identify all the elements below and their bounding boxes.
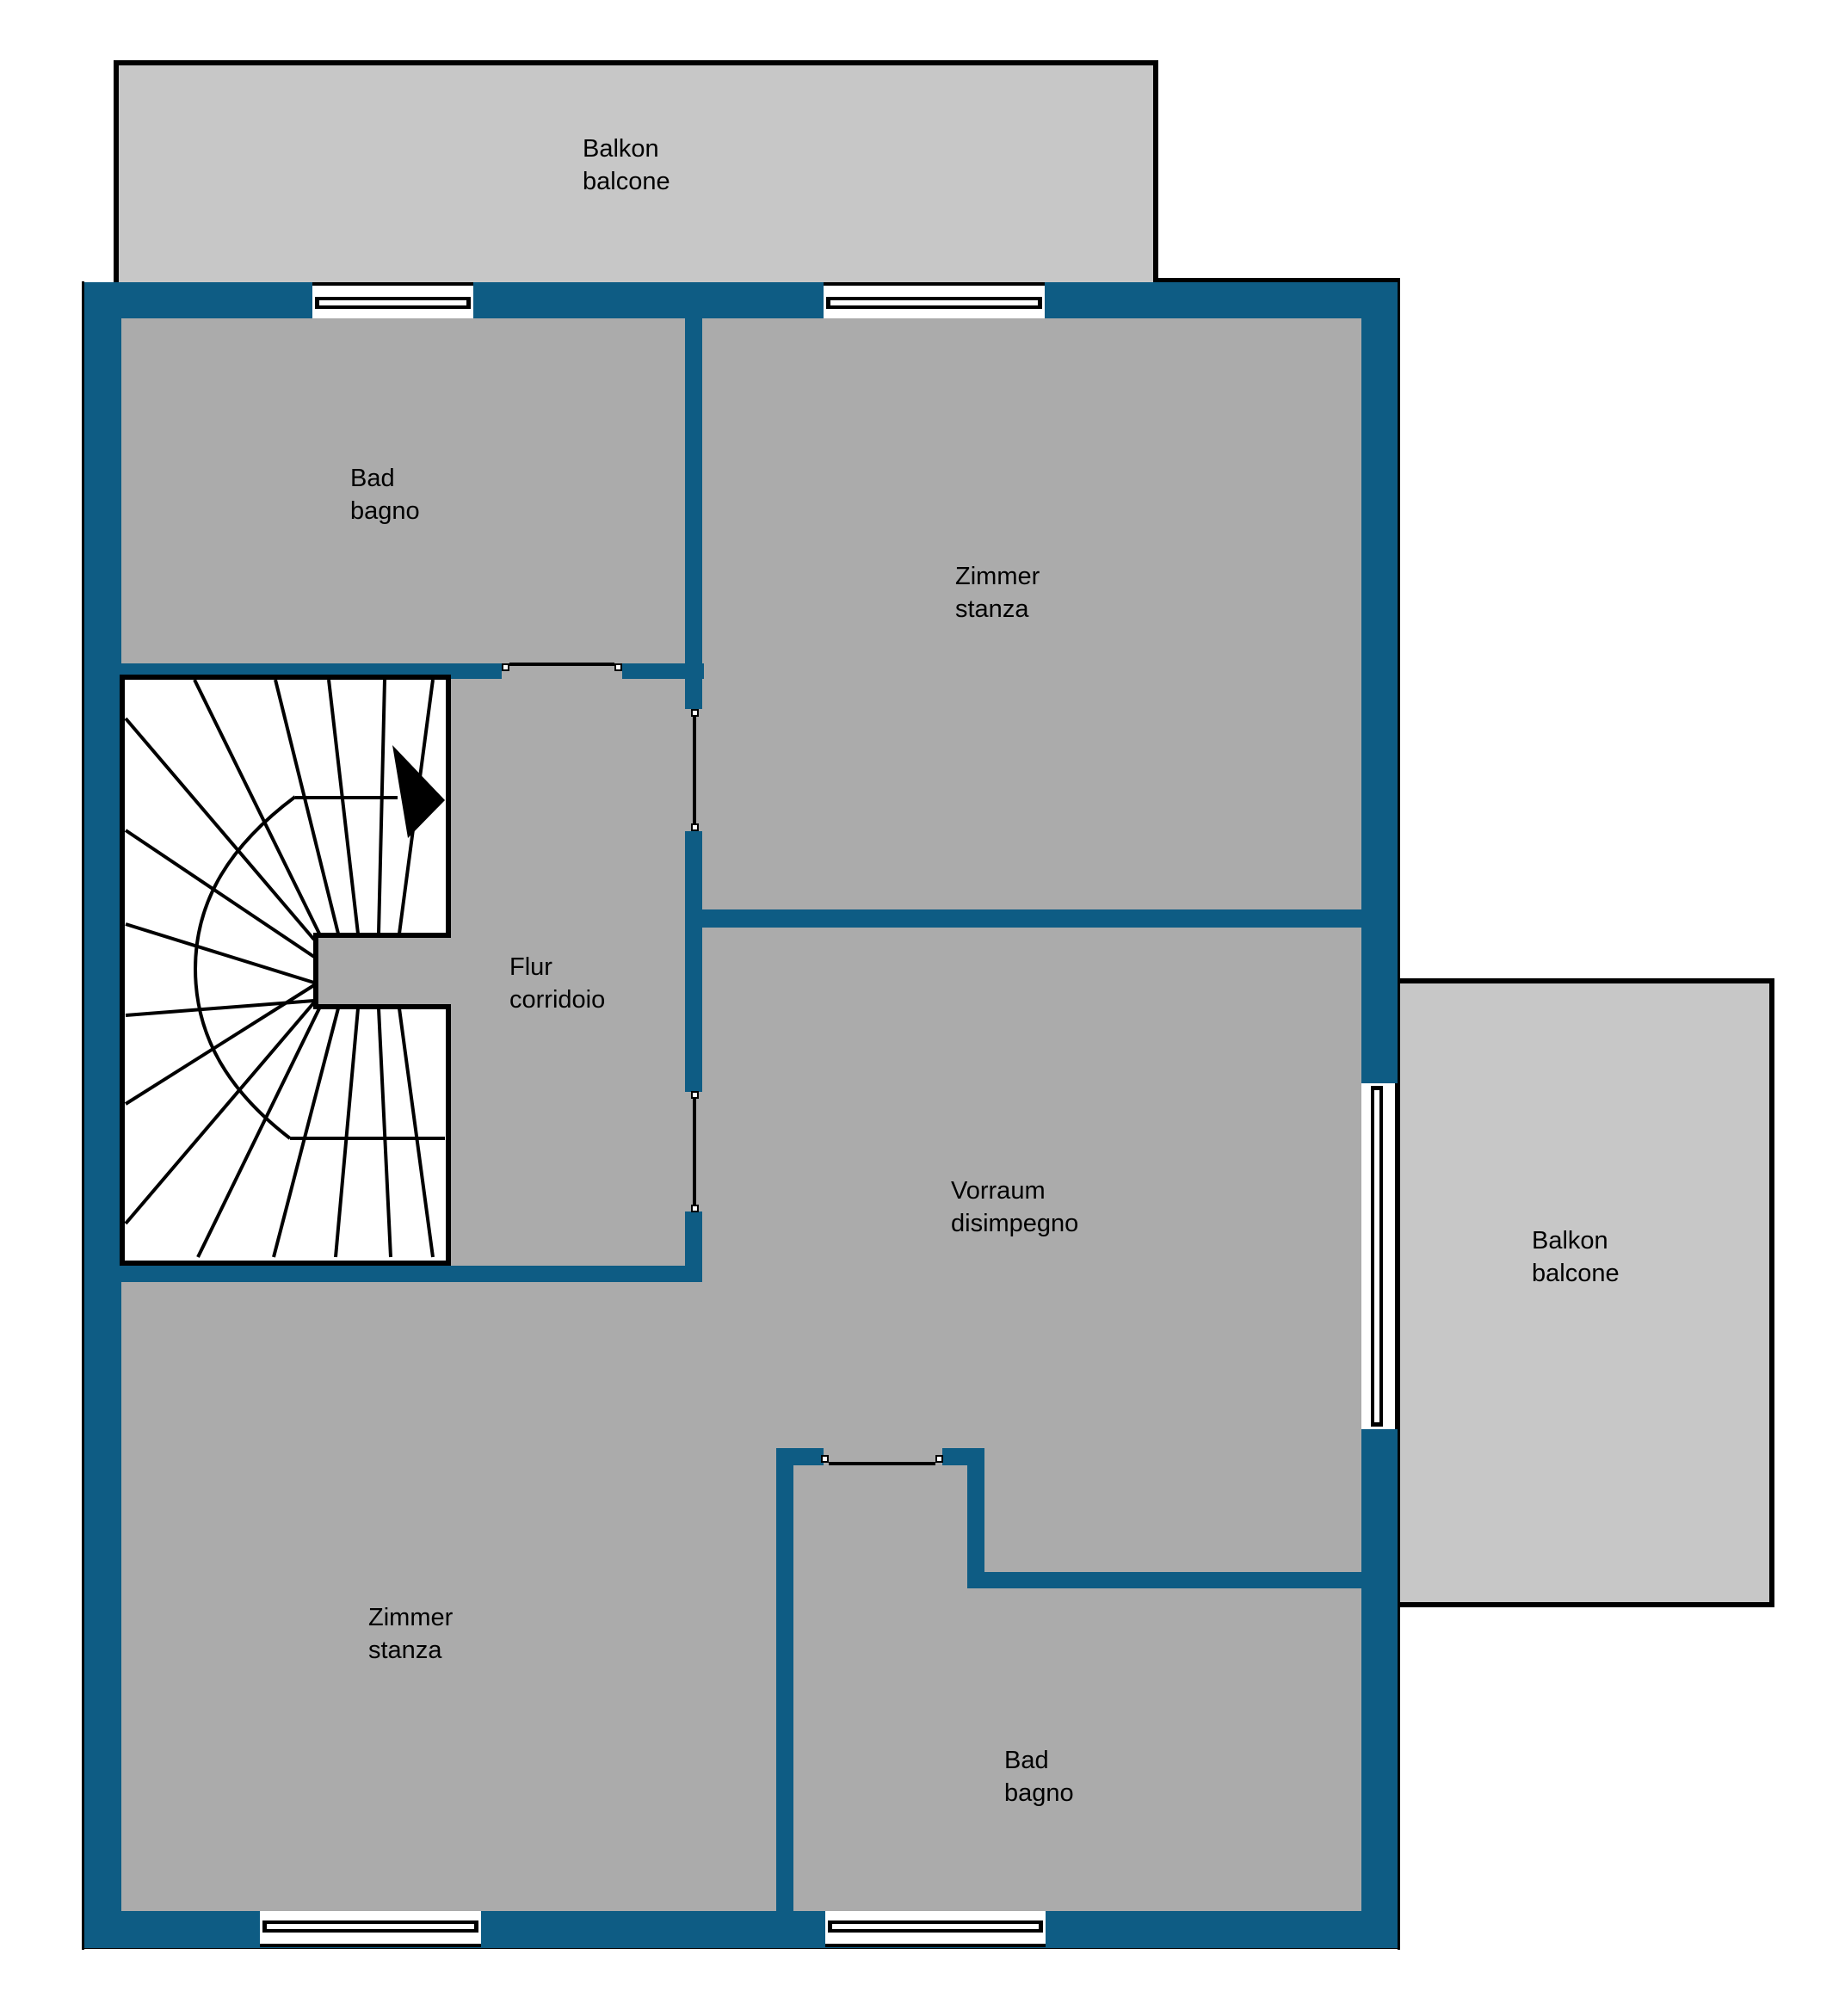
svg-text:balcone: balcone (1532, 1260, 1620, 1287)
svg-text:Bad: Bad (350, 465, 395, 492)
svg-text:bagno: bagno (350, 497, 420, 525)
svg-text:Bad: Bad (1004, 1747, 1049, 1774)
svg-text:Vorraum: Vorraum (951, 1177, 1046, 1205)
svg-text:stanza: stanza (955, 595, 1029, 623)
svg-text:Zimmer: Zimmer (368, 1604, 454, 1631)
svg-text:corridoio: corridoio (509, 986, 605, 1014)
svg-text:Balkon: Balkon (583, 135, 659, 163)
svg-text:bagno: bagno (1004, 1779, 1074, 1807)
svg-text:stanza: stanza (368, 1637, 442, 1664)
svg-text:Flur: Flur (509, 953, 552, 981)
svg-text:disimpegno: disimpegno (951, 1210, 1078, 1237)
svg-text:Balkon: Balkon (1532, 1227, 1608, 1255)
svg-text:balcone: balcone (583, 168, 670, 195)
svg-text:Zimmer: Zimmer (955, 563, 1040, 590)
